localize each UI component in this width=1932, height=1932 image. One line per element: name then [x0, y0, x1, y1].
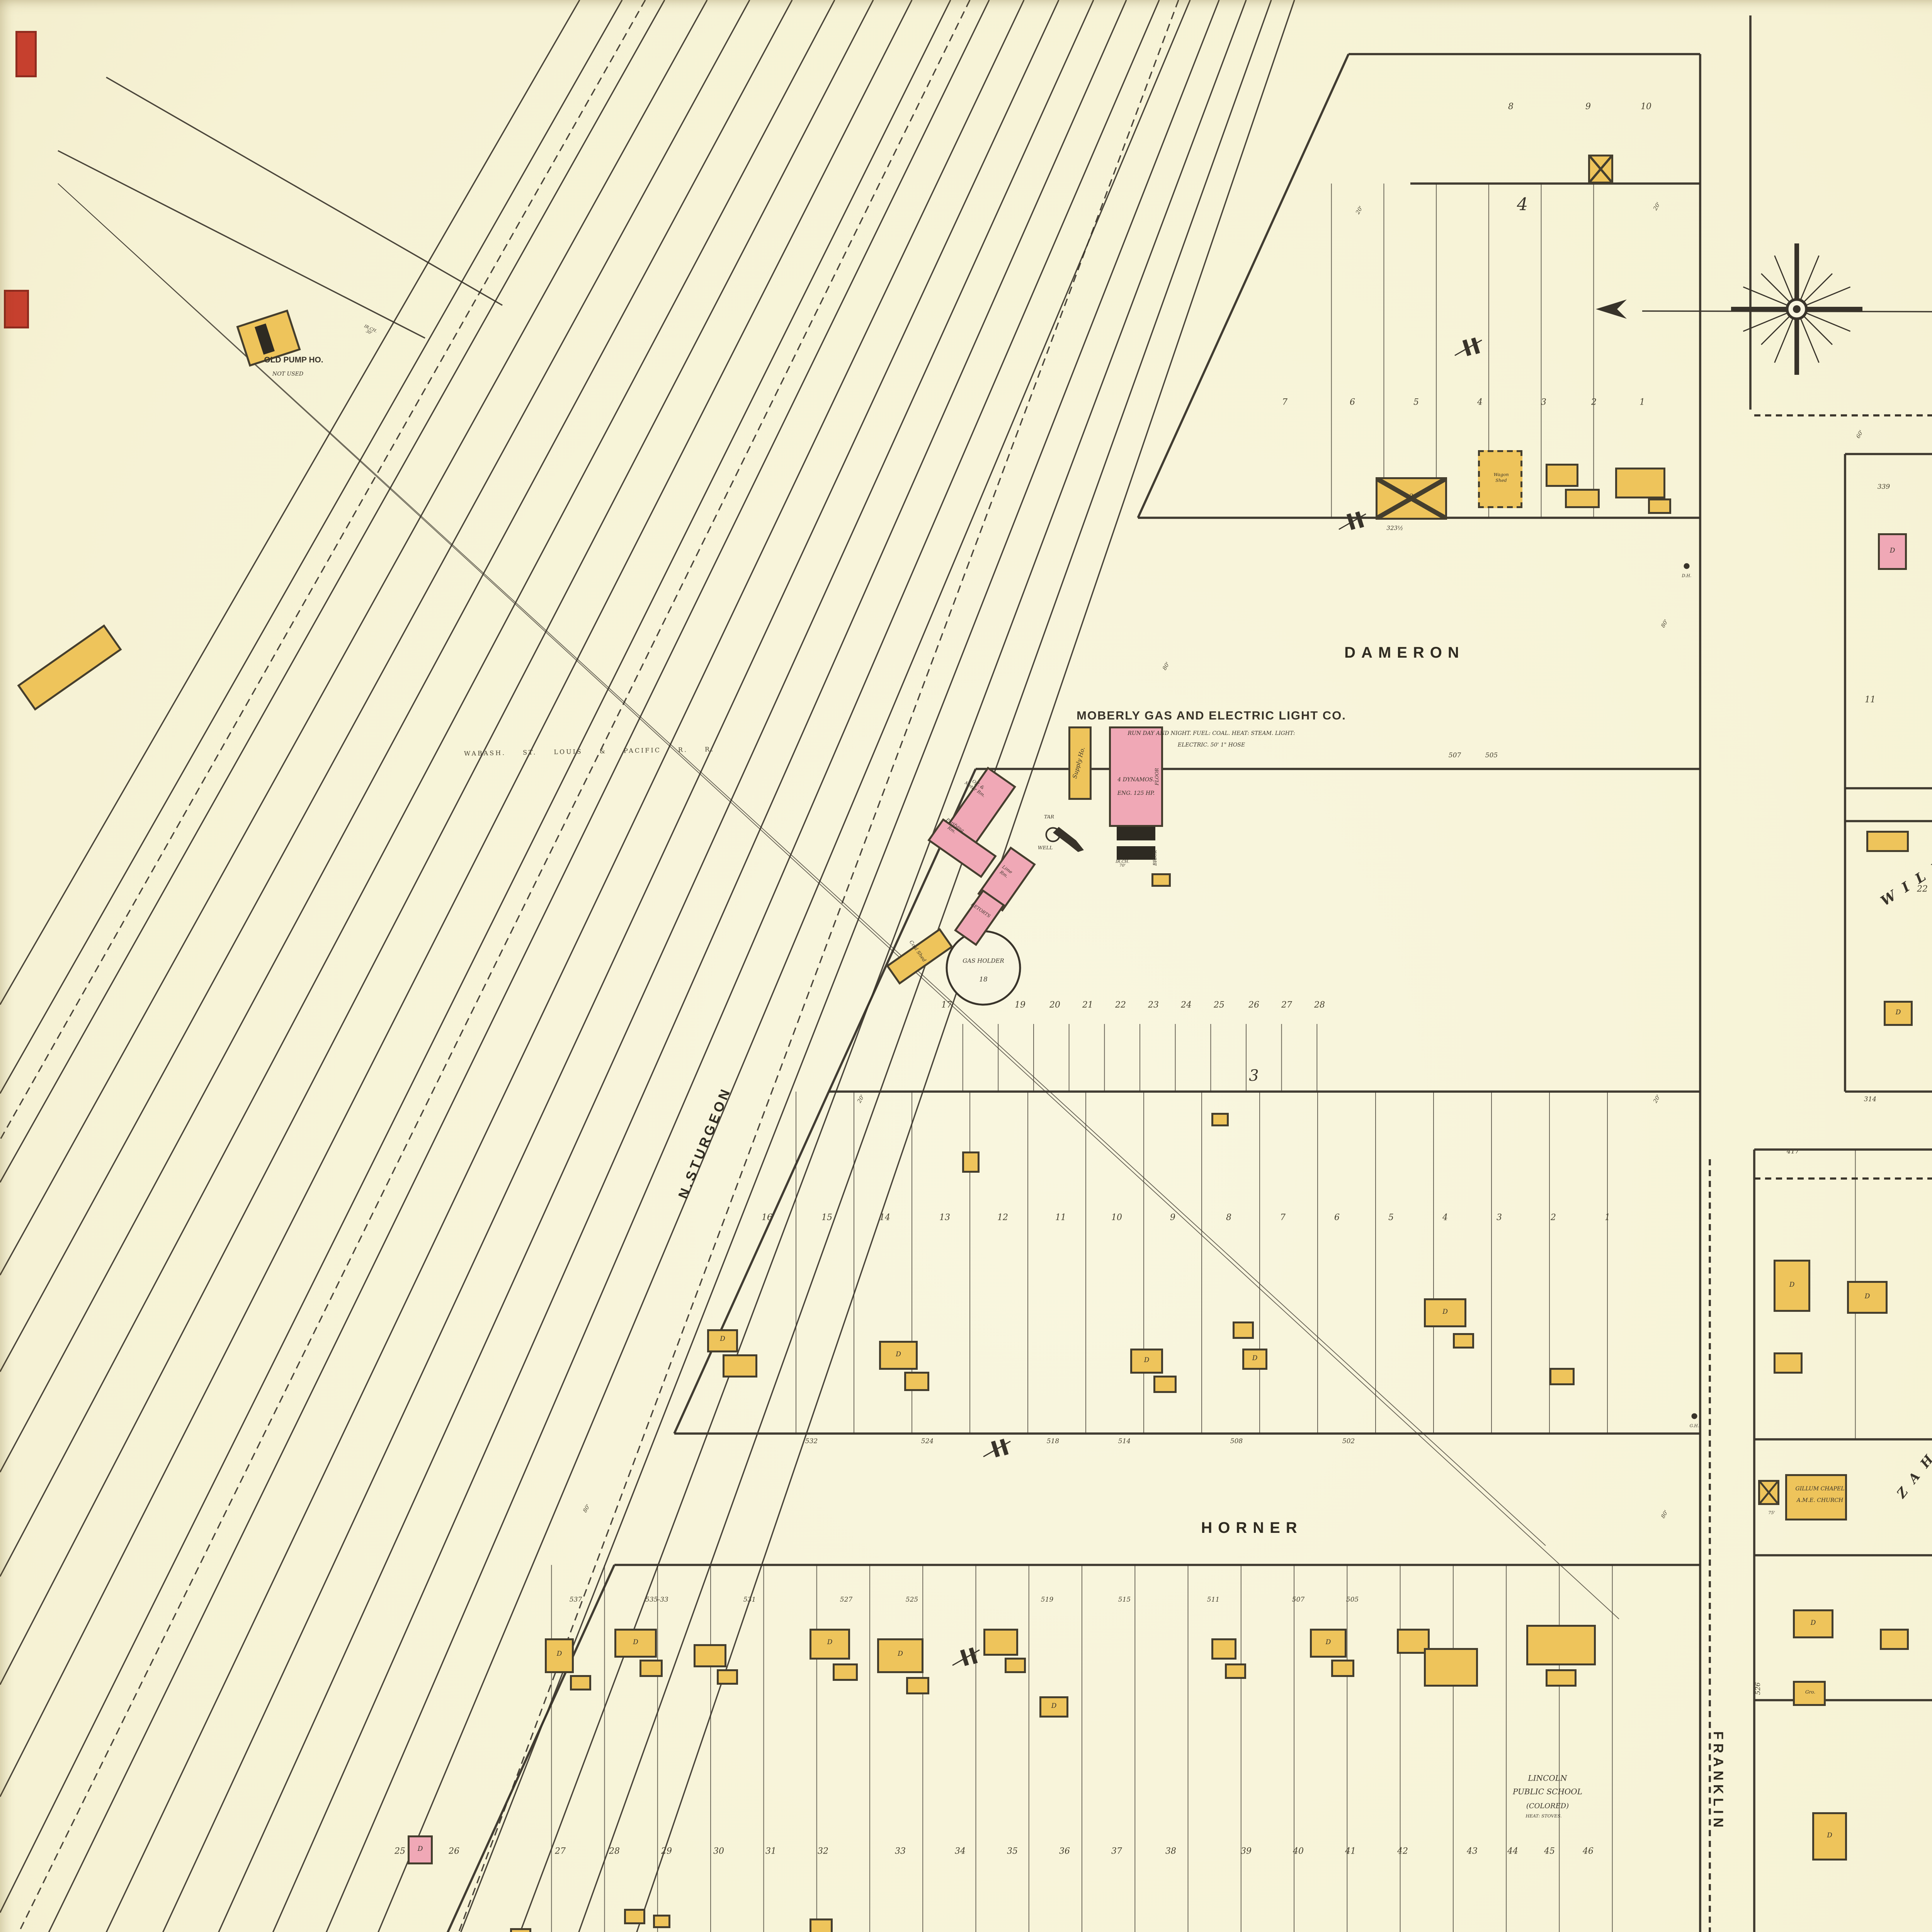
lot-number: 38 [1165, 1848, 1176, 1857]
old-pump-house-label: OLD PUMP HO. [264, 357, 323, 366]
house-number: 505 [1485, 753, 1498, 761]
street-label-dameron: DAMERON [1344, 644, 1465, 662]
building [962, 1151, 980, 1173]
lot-number: 36 [1059, 1848, 1070, 1857]
lot-number: 1 [1605, 1214, 1610, 1224]
lot-number: 22 [1917, 886, 1928, 895]
house-number: 323½ [1386, 526, 1403, 532]
building: D [1039, 1696, 1068, 1718]
house-number: 518 [1047, 1439, 1059, 1447]
building: D [707, 1329, 738, 1352]
house-number: 508 [1230, 1439, 1243, 1447]
building: D [1774, 1260, 1810, 1312]
school-name-1: LINCOLN [1528, 1775, 1567, 1784]
house-number: 514 [1118, 1439, 1131, 1447]
building [810, 1918, 833, 1932]
building [723, 1354, 757, 1378]
lot-number: 30 [713, 1848, 724, 1857]
school-name-3: (COLORED) [1526, 1803, 1569, 1811]
house-number: 535-33 [645, 1598, 668, 1605]
building [1546, 464, 1578, 487]
building: D [1130, 1349, 1163, 1374]
lot-number: 42 [1397, 1848, 1408, 1857]
map-canvas: MAY 1899 MOBERLY MO. 5 3 Map Division Li… [0, 0, 1932, 1932]
building [1866, 831, 1909, 852]
lot-number: 45 [1544, 1848, 1555, 1857]
edge-mark [4, 290, 29, 328]
house-number: 502 [1342, 1439, 1355, 1447]
hydrant-label: D.H. [1682, 575, 1692, 580]
building [906, 1677, 929, 1694]
lot-number: 20 [1049, 1002, 1060, 1011]
building-letter: D [1789, 1282, 1795, 1289]
lot-number: 23 [1148, 1002, 1159, 1011]
church-name-2: A.M.E. CHURCH [1797, 1498, 1844, 1504]
building [694, 1644, 726, 1667]
lot-number: 11 [1055, 1214, 1066, 1224]
building: D [1812, 1812, 1847, 1861]
building [1526, 1625, 1596, 1665]
brick-label: BRICK [1155, 850, 1160, 866]
building-letter: D [1865, 1294, 1870, 1301]
edge-mark [15, 31, 37, 77]
house-number: 524 [921, 1439, 934, 1447]
building-letter: D [720, 1337, 725, 1344]
lot-number: 35 [1007, 1848, 1018, 1857]
street-label-franklin: FRANKLIN [1708, 1731, 1723, 1832]
building [1453, 1333, 1474, 1349]
lot-number: 8 [1226, 1214, 1231, 1224]
building-letter: D [1896, 1010, 1901, 1017]
building [1588, 155, 1613, 184]
gasworks-subtitle: RUN DAY AND NIGHT. FUEL: COAL. HEAT: STE… [1128, 731, 1295, 737]
building-letter: 2 [1409, 495, 1413, 502]
house-number: 531 [743, 1598, 756, 1605]
lot-number: 3 [1497, 1214, 1502, 1224]
lot-number: 7 [1282, 399, 1287, 408]
building [570, 1675, 591, 1690]
building: D [408, 1835, 433, 1864]
building-letter: D [827, 1641, 833, 1647]
house-number: 526 [1756, 1682, 1764, 1695]
building [510, 1928, 531, 1932]
lot-number: 6 [1334, 1214, 1340, 1224]
building [653, 1915, 670, 1928]
lot-number: 3 [1541, 399, 1546, 408]
lot-number: 21 [1082, 1002, 1093, 1011]
building [1774, 1352, 1803, 1374]
building-letter: D [633, 1640, 638, 1646]
building: D [1310, 1629, 1347, 1658]
lot-number: 39 [1241, 1848, 1252, 1857]
lot-number: 12 [997, 1214, 1008, 1224]
building [833, 1663, 858, 1681]
house-number: 417 [1787, 1150, 1799, 1157]
lot-number: 37 [1111, 1848, 1122, 1857]
house-number: 339 [1878, 485, 1890, 493]
lot-number: 16 [762, 1214, 772, 1224]
house-number: 537 [570, 1598, 582, 1605]
lot-number: 25 [1214, 1002, 1225, 1011]
lot-number: 11 [1865, 696, 1876, 706]
building: D [545, 1638, 574, 1673]
tar-well-label: TAR [1044, 816, 1054, 822]
lot-number: 17 [941, 1002, 952, 1011]
lot-number: 46 [1583, 1848, 1594, 1857]
lot-number: 26 [1248, 1002, 1259, 1011]
lot-number: 33 [895, 1848, 906, 1857]
street-label-horner: HORNER [1201, 1519, 1303, 1537]
building-letter: D [1144, 1358, 1150, 1364]
building [1117, 827, 1155, 840]
lot-number: 4 [1442, 1214, 1448, 1224]
lot-number: 6 [1350, 399, 1355, 408]
block-number: 4 [1517, 197, 1528, 217]
block-number: 3 [1249, 1067, 1259, 1085]
house-number: 525 [906, 1598, 918, 1605]
house-number: 314 [1864, 1097, 1876, 1105]
school-name-2: PUBLIC SCHOOL [1513, 1789, 1582, 1798]
lot-number: 43 [1467, 1848, 1478, 1857]
building: D [1884, 1001, 1913, 1026]
building-letter: D [1051, 1704, 1057, 1710]
building [1549, 1368, 1575, 1385]
survey-marker-icon [1596, 299, 1627, 319]
building [1117, 846, 1155, 860]
lot-number: 10 [1111, 1214, 1122, 1224]
lot-number: 26 [449, 1848, 459, 1857]
lot-number: 22 [1115, 1002, 1126, 1011]
lot-number: 13 [939, 1214, 950, 1224]
building-letter: D [896, 1352, 901, 1359]
lot-number: 2 [1551, 1214, 1556, 1224]
building [1211, 1638, 1236, 1660]
building: D [1847, 1281, 1888, 1314]
house-number: 527 [840, 1598, 852, 1605]
building: D [1424, 1298, 1466, 1327]
lot-number: 4 [1477, 399, 1483, 408]
house-number: 507 [1292, 1598, 1304, 1605]
lot-number: 1 [1639, 399, 1645, 408]
lot-number: 8 [1508, 103, 1514, 113]
building [639, 1660, 663, 1677]
lot-number: 27 [555, 1848, 566, 1857]
house-number: 505 [1346, 1598, 1359, 1605]
building [1153, 1376, 1177, 1393]
sanborn-map-sheet: MAY 1899 MOBERLY MO. 5 3 Map Division Li… [0, 0, 1932, 1932]
lot-number: 9 [1585, 103, 1591, 113]
building-letter: D [1442, 1310, 1448, 1316]
lot-number: 34 [955, 1848, 966, 1857]
lot-number: 2 [1591, 399, 1597, 408]
lot-number: 25 [395, 1848, 405, 1857]
lot-number: 44 [1507, 1848, 1518, 1857]
building-letter: D [1811, 1621, 1816, 1627]
church-dim: 75' [1768, 1512, 1775, 1517]
building [1211, 1113, 1229, 1126]
lot-number: 28 [1314, 1002, 1325, 1011]
building-letter: D [1827, 1833, 1832, 1840]
map-linework [0, 0, 1932, 1932]
lot-number: 14 [879, 1214, 890, 1224]
gas-holder-lot: 18 [979, 978, 988, 985]
lot-number: 24 [1181, 1002, 1192, 1011]
lot-number: 27 [1281, 1002, 1292, 1011]
lot-number: 5 [1388, 1214, 1394, 1224]
building: D [879, 1341, 918, 1370]
building: D [1242, 1349, 1267, 1370]
gas-holder-label: GAS HOLDER [963, 959, 1004, 965]
lot-number: 9 [1170, 1214, 1175, 1224]
hydrant-label: G.H. [1690, 1425, 1699, 1430]
building-letter: D [418, 1847, 423, 1853]
building [1331, 1660, 1354, 1677]
building: 2 [1376, 477, 1447, 520]
building [1758, 1480, 1779, 1505]
building [1005, 1658, 1026, 1673]
building [904, 1372, 929, 1391]
lot-number: 31 [765, 1848, 776, 1857]
dynamos-label: 4 DYNAMOS. [1117, 777, 1154, 784]
house-number: 507 [1449, 753, 1461, 761]
lot-number: 19 [1015, 1002, 1026, 1011]
building [1151, 873, 1171, 887]
house-number: 532 [805, 1439, 818, 1447]
house-number: 511 [1207, 1598, 1219, 1605]
house-number: 515 [1118, 1598, 1131, 1605]
grocery-label: Gro. [1805, 1692, 1815, 1697]
hydrant-dot [1691, 1413, 1697, 1419]
gasworks-title: MOBERLY GAS AND ELECTRIC LIGHT CO. [1077, 710, 1346, 724]
building: D [1793, 1609, 1833, 1638]
building [1880, 1629, 1909, 1650]
gasworks-subtitle2: ELECTRIC. 50' 1" HOSE [1178, 743, 1245, 749]
building [983, 1629, 1018, 1656]
engine-label: ENG. 125 HP. [1117, 791, 1155, 797]
building [1648, 498, 1671, 514]
building-letter: D [1326, 1640, 1331, 1646]
building [717, 1669, 738, 1685]
building [1615, 468, 1665, 498]
building-letter: D [1890, 548, 1895, 555]
lot-number: 40 [1293, 1848, 1304, 1857]
building [1225, 1663, 1246, 1679]
building: D [614, 1629, 657, 1658]
building-letter: D [898, 1652, 903, 1659]
house-number: 519 [1041, 1598, 1053, 1605]
building: D [1878, 533, 1907, 570]
tar-well-label2: WELL [1038, 847, 1053, 853]
lot-number: 7 [1280, 1214, 1286, 1224]
lot-number: 41 [1345, 1848, 1356, 1857]
lot-number: 10 [1641, 103, 1651, 113]
church-name-1: GILLUM CHAPEL [1796, 1486, 1845, 1493]
lot-number: 28 [609, 1848, 620, 1857]
gas-holder-circle [947, 931, 1020, 1005]
building [1546, 1669, 1577, 1687]
lot-number: 15 [821, 1214, 832, 1224]
iron-chimney-label: IR.CH. 70' [1116, 861, 1129, 870]
hydrant-dot [1684, 563, 1689, 569]
school-heat: HEAT: STOVES. [1526, 1815, 1561, 1820]
wagon-shed-label: Wagon Shed [1493, 474, 1509, 484]
building: D [810, 1629, 850, 1660]
building-letter: D [557, 1652, 562, 1659]
building [1424, 1648, 1478, 1687]
building [1565, 489, 1600, 508]
lot-number: 29 [661, 1848, 672, 1857]
building: D [877, 1638, 923, 1673]
floor-label: FLOOR [1156, 768, 1162, 786]
building-letter: D [1252, 1356, 1258, 1362]
old-pump-not-used: NOT USED [272, 372, 303, 378]
building [1233, 1321, 1254, 1339]
building [624, 1909, 645, 1924]
lot-number: 5 [1413, 399, 1419, 408]
lot-number: 32 [818, 1848, 828, 1857]
